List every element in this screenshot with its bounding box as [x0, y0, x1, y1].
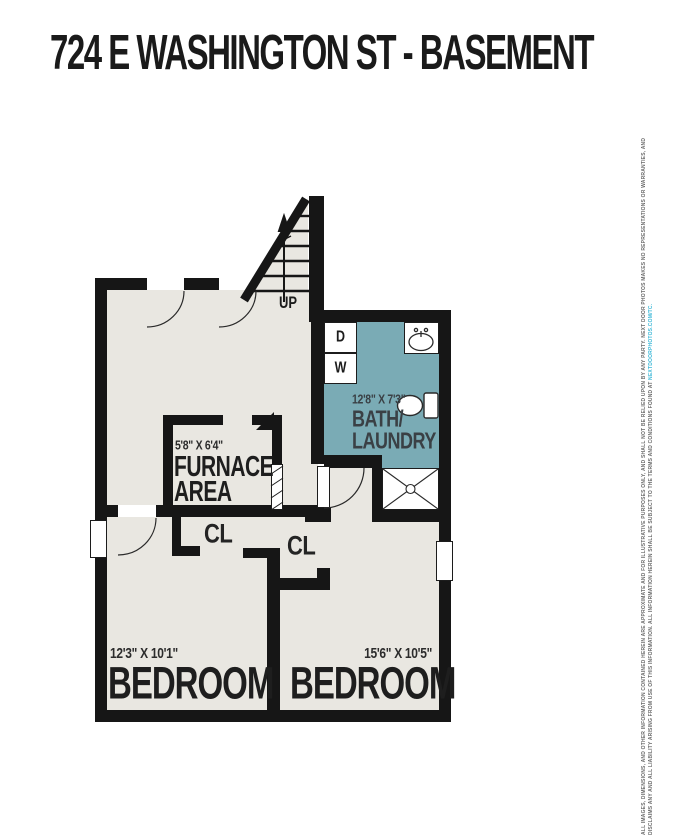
washer-label: W: [324, 360, 357, 376]
disclaimer-text: ALL IMAGES, DIMENSIONS, AND OTHER INFORM…: [641, 138, 654, 835]
closet2-label: CL: [287, 533, 315, 559]
window-left: [90, 520, 107, 558]
dryer-label: D: [324, 329, 357, 345]
wall-hallway-left-seg: [95, 505, 118, 517]
wall-bath-door-jamb: [305, 508, 331, 522]
door-gap-main-2: [219, 278, 256, 290]
sink-counter: [404, 322, 439, 354]
floor-plan-page: { "title": "724 E WASHINGTON ST - BASEME…: [0, 0, 684, 837]
wall-bath-left: [311, 322, 324, 464]
closet-strip-floor: [268, 517, 280, 550]
bath-door-leaf: [317, 466, 330, 508]
furnace-label-line2: AREA: [174, 478, 232, 506]
wall-closet1-bottom-left: [172, 546, 200, 556]
shower-pan: [382, 468, 439, 510]
wall-closet2-stub: [317, 568, 330, 590]
disclaimer-link: NEXTDOORPHOTOS.COM/TC.: [648, 304, 654, 380]
bath-label-line2: LAUNDRY: [352, 429, 436, 452]
wall-furnace-left: [163, 415, 173, 510]
hall-below-bath-floor: [330, 462, 372, 522]
bath-floor-shower-strip: [382, 455, 439, 468]
wall-stairs-right: [309, 196, 324, 322]
wall-bath-bottom: [372, 510, 451, 522]
door-gap-main-1: [147, 278, 184, 290]
wall-closet1-bottom-right: [243, 548, 269, 558]
door-gap-bedroom1: [118, 505, 156, 517]
wall-left-outer: [95, 278, 107, 722]
legal-disclaimer: ALL IMAGES, DIMENSIONS, AND OTHER INFORM…: [641, 135, 654, 835]
window-right: [436, 541, 453, 581]
stairs-up-label: UP: [279, 294, 297, 310]
bedroom2-label: BEDROOM: [290, 660, 455, 706]
closet1-label: CL: [204, 521, 232, 547]
bedroom1-label: BEDROOM: [108, 660, 273, 706]
wall-bath-top: [309, 310, 451, 322]
page-title: 724 E WASHINGTON ST - BASEMENT: [50, 24, 593, 81]
